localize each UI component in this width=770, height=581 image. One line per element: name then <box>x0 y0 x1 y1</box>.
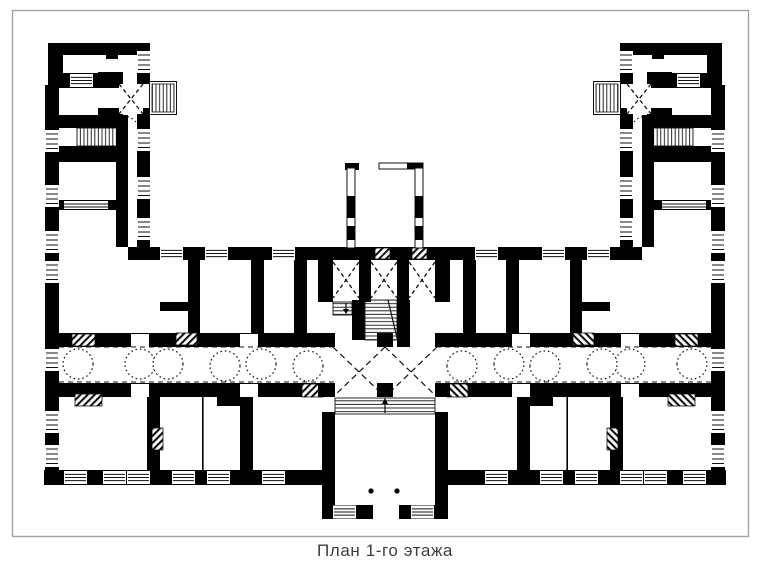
porch-steps <box>150 82 177 115</box>
window <box>70 74 93 87</box>
cross-vault <box>333 262 359 298</box>
windows <box>137 129 151 240</box>
cross-vault <box>371 262 397 298</box>
window <box>333 506 356 519</box>
door-post-dot <box>368 488 373 493</box>
door-wall <box>59 200 128 210</box>
cross-vault <box>119 84 143 114</box>
floor-plan-drawing <box>0 0 770 581</box>
cross-vault-row <box>318 258 450 302</box>
figure-caption: План 1-го этажа <box>0 541 770 561</box>
windows <box>160 247 295 260</box>
cross-vault <box>409 262 435 298</box>
door-post-dot <box>394 488 399 493</box>
window <box>137 51 151 73</box>
scanned-plan-page: План 1-го этажа <box>0 0 770 581</box>
entrance-door-gap <box>373 505 399 519</box>
stair-flight <box>77 128 118 146</box>
window <box>411 506 434 519</box>
